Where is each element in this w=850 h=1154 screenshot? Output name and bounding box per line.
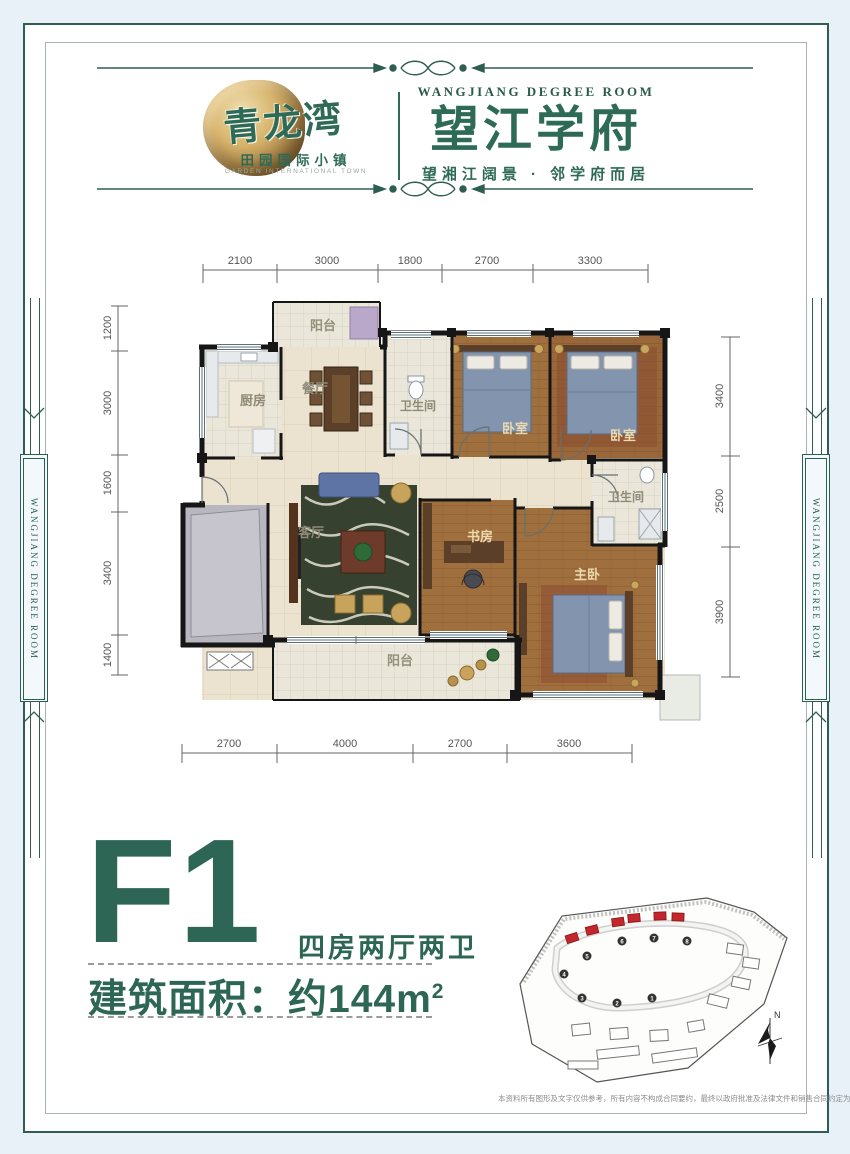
dim-bottom-2: 4000 — [333, 738, 357, 750]
label-balcony-top: 阳台 — [310, 318, 336, 333]
brand-block: WANGJIANG DEGREE ROOM 望江学府 望湘江阔景 · 邻学府而居 — [408, 84, 664, 184]
label-bath1: 卫生间 — [400, 398, 436, 413]
dashed-divider-1 — [88, 963, 432, 965]
brand-title-en: WANGJIANG DEGREE ROOM — [408, 84, 664, 100]
label-dining: 餐厅 — [301, 381, 328, 396]
label-master: 主卧 — [574, 567, 600, 582]
dim-left-1: 1200 — [102, 316, 114, 340]
dim-top-5: 3300 — [578, 255, 602, 267]
dim-right-1: 3400 — [714, 384, 726, 408]
dim-bottom-1: 2700 — [217, 738, 241, 750]
floor-study — [420, 500, 515, 635]
right-banner-box: WANGJIANG DEGREE ROOM — [802, 454, 830, 702]
dim-right-2: 2500 — [714, 489, 726, 513]
dim-top-2: 3000 — [315, 255, 339, 267]
unit-area-sup: 2 — [432, 980, 445, 1003]
label-balcony-bottom: 阳台 — [387, 653, 413, 668]
unit-code: F1 — [86, 822, 263, 963]
unit-type-desc: 四房两厅两卫 — [298, 926, 478, 965]
dim-left-4: 3400 — [102, 561, 114, 585]
dim-bottom-3: 2700 — [448, 738, 472, 750]
label-living: 客厅 — [298, 525, 324, 540]
flourish-bottom-divider — [85, 178, 765, 200]
compass-icon: N — [758, 1010, 782, 1064]
brand-title-cn: 望江学府 — [408, 103, 664, 157]
label-kitchen: 厨房 — [240, 393, 266, 408]
chevron-down-icon — [804, 406, 828, 420]
floor-plan: 2100 3000 1800 2700 3300 1200 3000 1600 … — [95, 235, 775, 780]
compass-north-label: N — [774, 1010, 781, 1020]
chevron-up-icon — [22, 710, 46, 724]
label-bath2: 卫生间 — [608, 489, 644, 504]
dim-left-5: 1400 — [102, 643, 114, 667]
dim-right-3: 3900 — [714, 600, 726, 624]
dim-top-3: 1800 — [398, 255, 422, 267]
flourish-top-divider — [85, 57, 765, 79]
label-study: 书房 — [467, 529, 493, 544]
left-banner-box: WANGJIANG DEGREE ROOM — [20, 454, 48, 702]
logo-subtitle-en: GARDEN INTERNATIONAL TOWN — [210, 168, 382, 175]
header-divider — [398, 92, 400, 180]
site-plan: 1 2 3 4 5 6 7 8 N — [502, 886, 804, 1091]
disclaimer-text: 本资料所有图形及文字仅供参考，所有内容不构成合同要约，最终以政府批准及法律文件和… — [498, 1093, 814, 1104]
right-side-banner: WANGJIANG DEGREE ROOM — [802, 298, 830, 858]
label-bedroom1: 卧室 — [502, 421, 528, 436]
logo-title: 青龙湾 — [221, 87, 345, 152]
right-banner-text: WANGJIANG DEGREE ROOM — [811, 498, 821, 660]
dashed-divider-2 — [88, 1016, 432, 1018]
unit-area-text: 建筑面积：约144m — [88, 978, 432, 1021]
dim-top-4: 2700 — [475, 255, 499, 267]
chevron-down-icon — [22, 406, 46, 420]
left-side-banner: WANGJIANG DEGREE ROOM — [20, 298, 48, 858]
logo-subtitle: 田园国际小镇 — [210, 149, 382, 169]
dim-bottom-4: 3600 — [557, 738, 581, 750]
label-bedroom2: 卧室 — [610, 428, 636, 443]
dim-left-3: 1600 — [102, 471, 114, 495]
poster-page: 青龙湾 田园国际小镇 GARDEN INTERNATIONAL TOWN WAN… — [0, 0, 850, 1154]
chevron-up-icon — [804, 710, 828, 724]
dim-left-2: 3000 — [102, 391, 114, 415]
left-banner-text: WANGJIANG DEGREE ROOM — [29, 498, 39, 660]
dim-top-1: 2100 — [228, 255, 252, 267]
